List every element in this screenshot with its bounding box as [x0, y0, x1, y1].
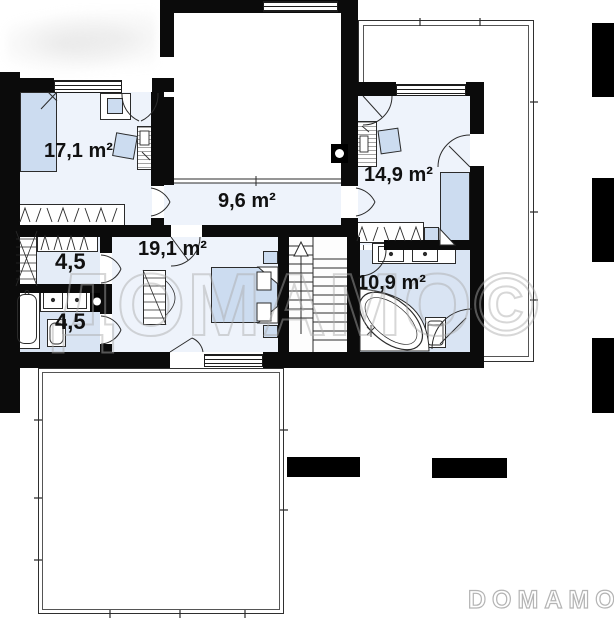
- void-open-edge: [174, 176, 341, 186]
- label-bathroom-main-area: 10,9 m²: [357, 272, 426, 295]
- censor-block-bottom-2: [432, 458, 507, 478]
- bathtub-small-detail: [18, 291, 37, 344]
- label-bedroom-right-area: 14,9 m²: [364, 164, 433, 187]
- censor-block-right-3: [592, 338, 614, 413]
- watermark-center: ДОМАМО©: [52, 254, 541, 356]
- censor-block-right-1: [592, 23, 614, 97]
- door-arc-hall-to-bedroom-left: [151, 188, 170, 216]
- desk-items: [140, 126, 369, 160]
- floor-plan-canvas: ДОМАМО© DOMAMO 17,1 m² 9,6 m² 14,9 m² 19…: [0, 0, 614, 621]
- closet-cabinet-shelves: [16, 231, 37, 286]
- door-arc-hall-to-bedroom-right: [356, 188, 375, 216]
- label-bedroom-master-area: 19,1 m²: [138, 238, 207, 261]
- door-arc-bedroom-right-terrace: [438, 135, 470, 167]
- watermark-logo: DOMAMO: [468, 586, 614, 615]
- closet-rail-symbols: [41, 236, 88, 250]
- censor-block-right-2: [592, 178, 614, 262]
- wardrobe-hanger-symbols-left: [20, 208, 117, 222]
- door-arc-bedroom-left-top: [122, 93, 158, 121]
- wardrobe-hanger-symbols-right: [357, 227, 421, 241]
- censor-block-bottom-1: [287, 457, 360, 477]
- label-wardrobe-area: 4,5: [55, 249, 86, 275]
- label-bathroom-small-area: 4,5: [55, 309, 86, 335]
- label-bedroom-left-area: 17,1 m²: [44, 140, 113, 163]
- label-hallway-area: 9,6 m²: [218, 190, 276, 213]
- door-arc-bedroom-right-top: [363, 96, 392, 125]
